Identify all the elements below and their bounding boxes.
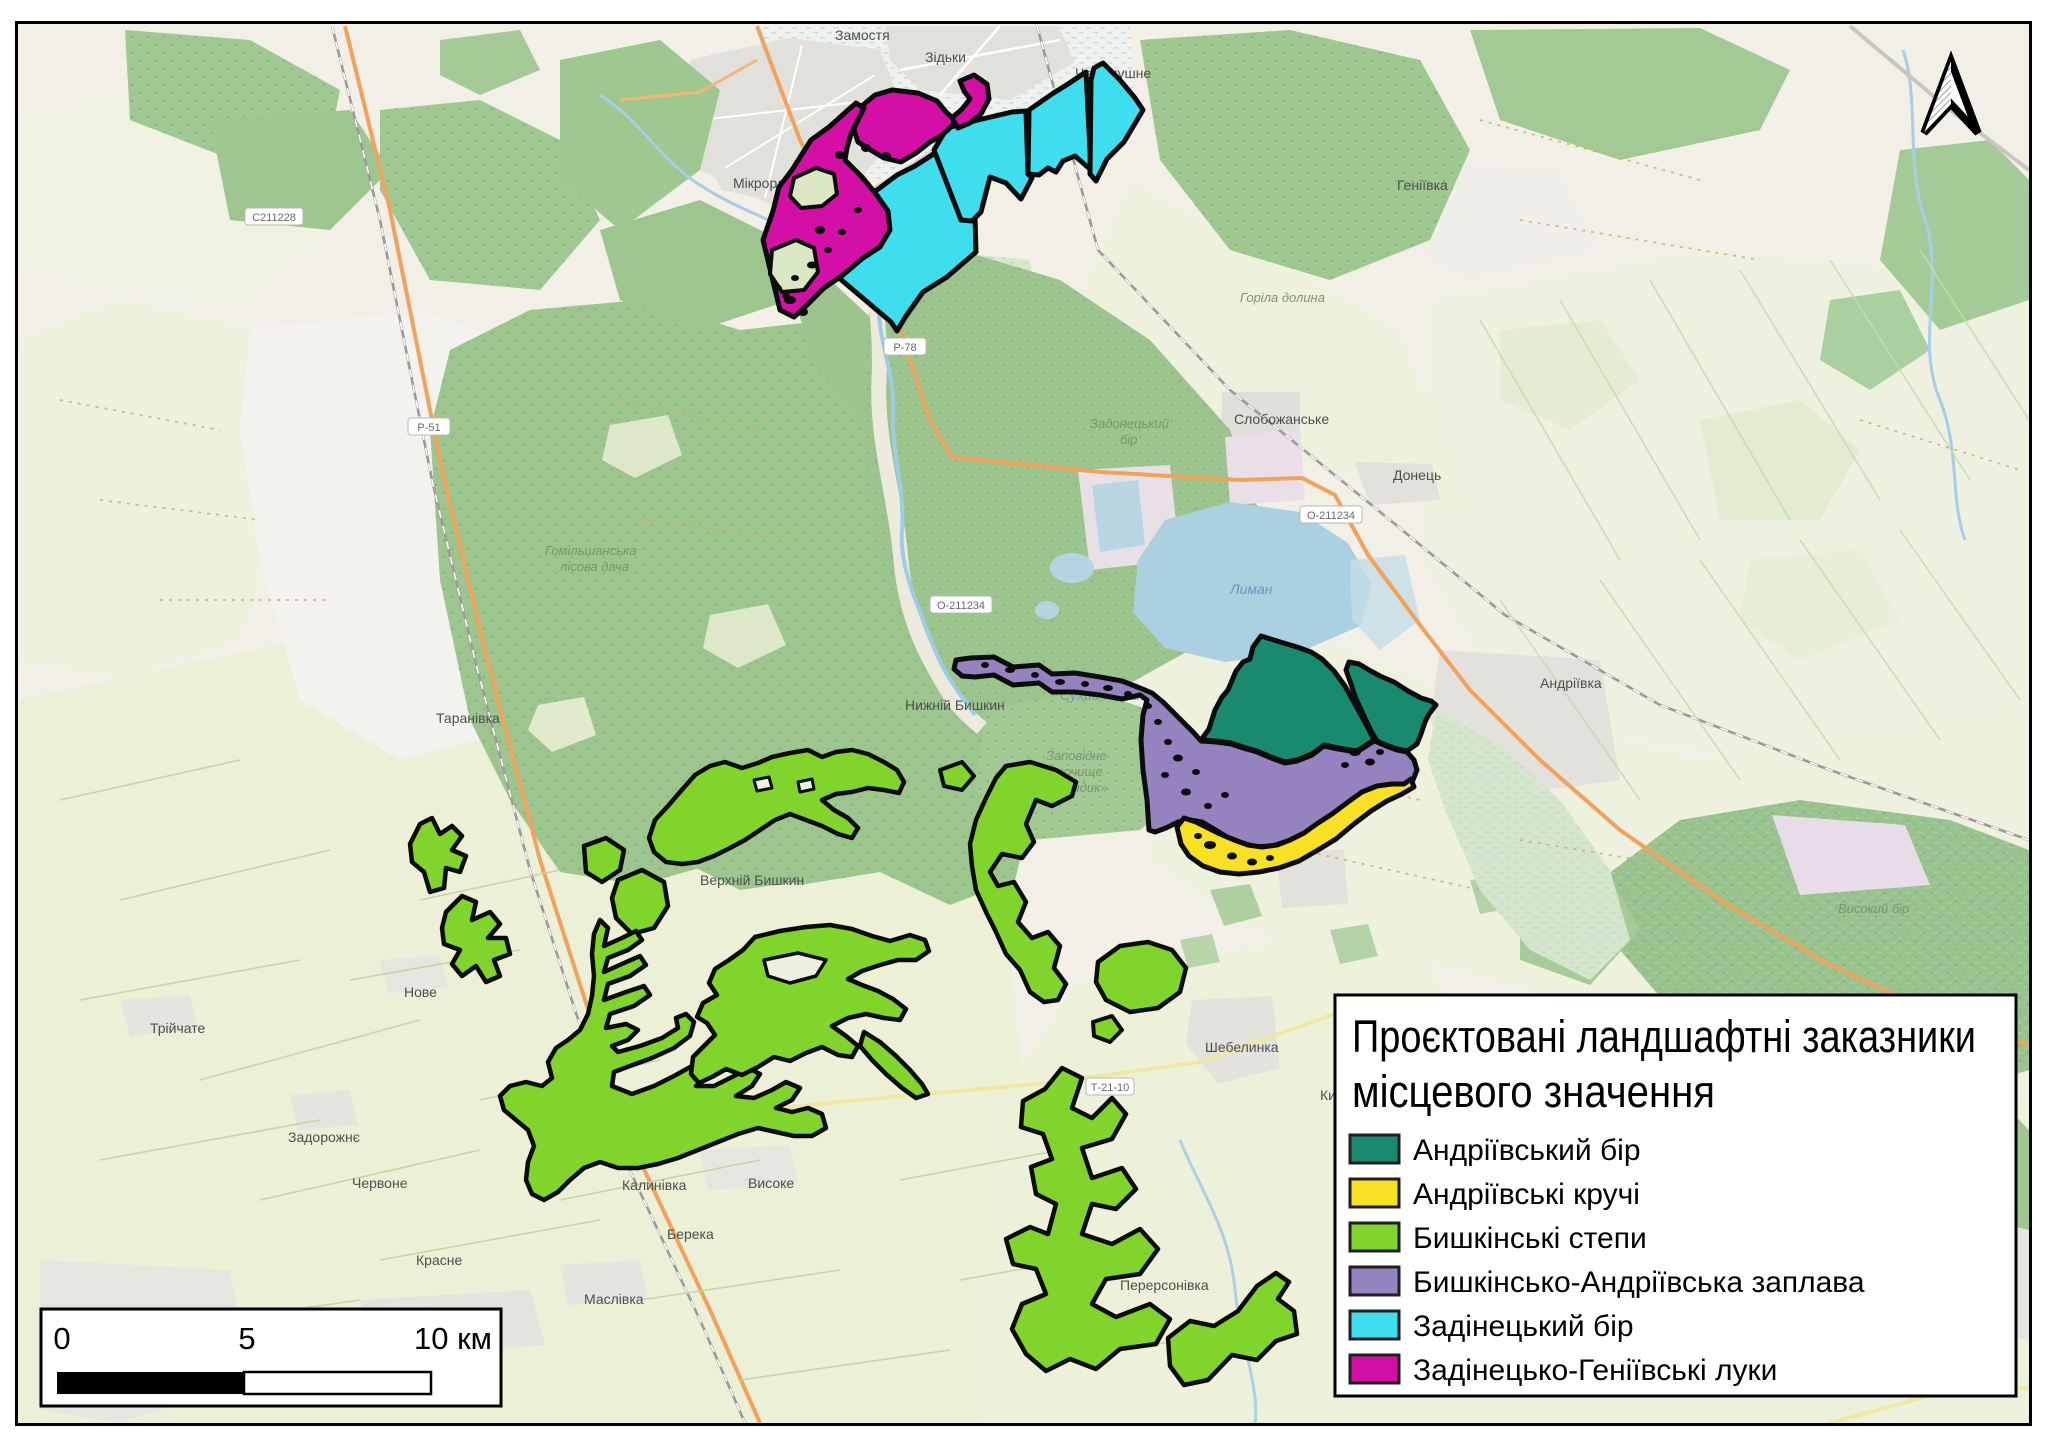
svg-text:О-211234: О-211234	[937, 600, 985, 612]
svg-text:Таранівка: Таранівка	[436, 710, 500, 726]
svg-text:Задінецько-Геніївські луки: Задінецько-Геніївські луки	[1413, 1354, 1777, 1387]
svg-text:Р-78: Р-78	[893, 342, 916, 354]
svg-text:Лиман: Лиман	[1229, 581, 1273, 597]
svg-text:Задінецький бір: Задінецький бір	[1413, 1310, 1634, 1343]
svg-text:Т-21-10: Т-21-10	[1091, 1082, 1130, 1094]
svg-text:Р-51: Р-51	[417, 422, 440, 434]
svg-text:лісова дача: лісова дача	[559, 559, 629, 574]
svg-text:Красне: Красне	[416, 1252, 462, 1268]
svg-text:Калинівка: Калинівка	[622, 1177, 687, 1193]
svg-text:Задонецький: Задонецький	[1090, 416, 1169, 431]
svg-text:Донець: Донець	[1393, 467, 1441, 483]
svg-text:Задорожнє: Задорожнє	[288, 1129, 360, 1145]
svg-text:Червоне: Червоне	[352, 1175, 408, 1191]
svg-text:Нове: Нове	[404, 984, 437, 1000]
svg-text:Андріївські кручі: Андріївські кручі	[1413, 1178, 1640, 1211]
svg-text:Бишкінсько-Андріївська заплава: Бишкінсько-Андріївська заплава	[1413, 1266, 1865, 1299]
svg-text:Слобожанське: Слобожанське	[1234, 411, 1329, 427]
svg-text:Гомільшанська: Гомільшанська	[545, 543, 636, 558]
svg-text:О-211234: О-211234	[1307, 510, 1355, 522]
svg-text:10 км: 10 км	[414, 1321, 492, 1356]
svg-text:Замостя: Замостя	[835, 27, 890, 43]
svg-text:Заповідне: Заповідне	[1046, 748, 1107, 763]
svg-text:Бишкінські степи: Бишкінські степи	[1413, 1222, 1647, 1255]
svg-text:Верхній Бишкин: Верхній Бишкин	[700, 872, 804, 888]
svg-text:Трійчате: Трійчате	[150, 1020, 206, 1036]
svg-text:Зідьки: Зідьки	[925, 49, 966, 65]
svg-text:Перерсонівка: Перерсонівка	[1120, 1277, 1209, 1293]
svg-text:Нижній Бишкин: Нижній Бишкин	[905, 697, 1005, 713]
svg-text:Андріївка: Андріївка	[1540, 675, 1602, 691]
svg-text:місцевого значення: місцевого значення	[1352, 1066, 1715, 1117]
svg-text:Геніївка: Геніївка	[1397, 177, 1448, 193]
svg-text:Шебелинка: Шебелинка	[1205, 1039, 1279, 1055]
svg-text:Високий бір: Високий бір	[1838, 901, 1909, 916]
svg-text:Проєктовані ландшафтні заказни: Проєктовані ландшафтні заказники	[1352, 1011, 1976, 1062]
svg-text:Горіла долина: Горіла долина	[1240, 290, 1325, 305]
svg-text:5: 5	[238, 1321, 255, 1356]
svg-text:Маслівка: Маслівка	[584, 1291, 644, 1307]
svg-text:Високе: Високе	[748, 1175, 794, 1191]
svg-text:бір: бір	[1120, 432, 1137, 447]
svg-text:С211228: С211228	[252, 212, 296, 224]
svg-text:Берека: Берека	[667, 1226, 714, 1242]
svg-text:Андріївський бір: Андріївський бір	[1413, 1134, 1641, 1167]
svg-text:0: 0	[53, 1321, 70, 1356]
